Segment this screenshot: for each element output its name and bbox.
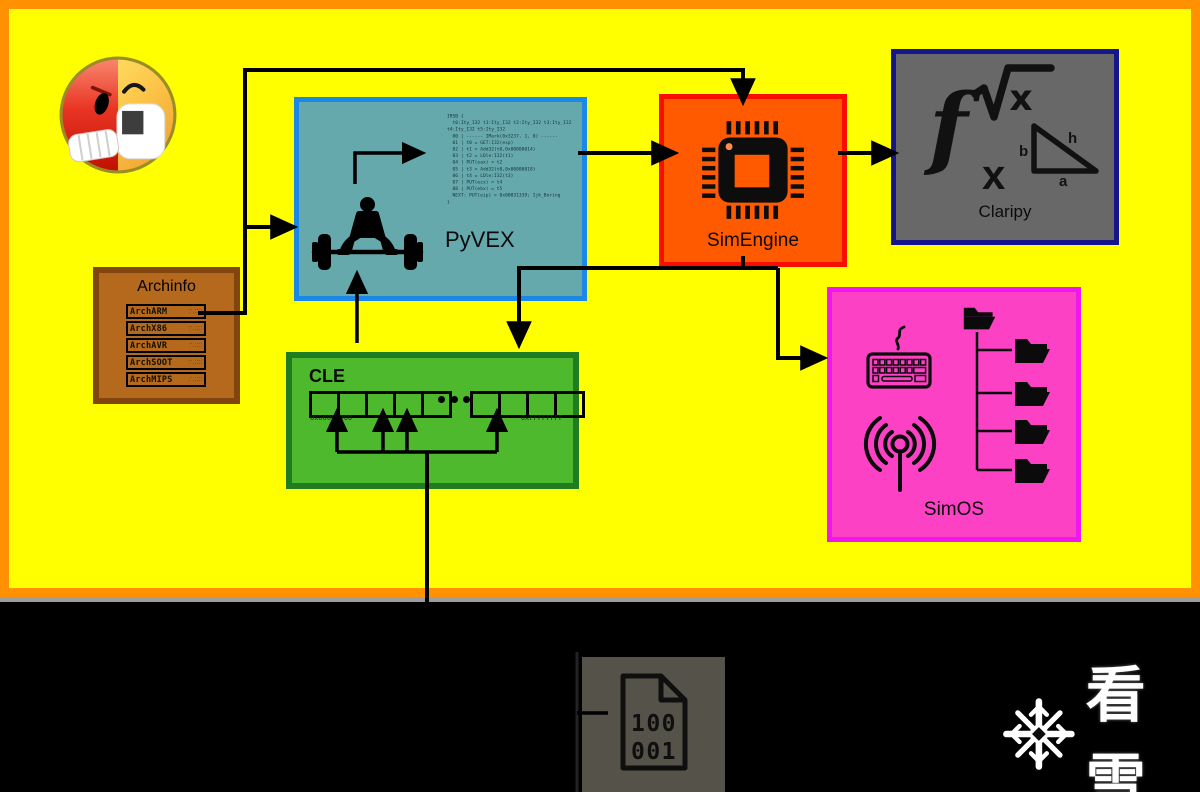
- snowflake-icon: [1002, 692, 1076, 776]
- arch-row: ArchARM ·· ····· ·····: [126, 304, 206, 319]
- weightlifter-icon: [310, 192, 425, 277]
- arch-row-detail: ·· ····· ·····: [188, 360, 202, 365]
- keyboard-icon: [864, 324, 934, 394]
- ellipsis-dots: [438, 396, 470, 403]
- arch-row-label: ArchAVR: [130, 341, 167, 351]
- svg-text:a: a: [1059, 173, 1068, 188]
- svg-text:b: b: [1019, 143, 1028, 160]
- folder-tree-icon: [950, 304, 1090, 490]
- svg-text:001: 001: [631, 739, 677, 765]
- cpu-chip-icon: [696, 111, 810, 225]
- simengine-label: SimEngine: [664, 230, 842, 252]
- diagram-slide: Archinfo ArchARM ·· ····· ····· ArchX86 …: [0, 0, 1200, 597]
- arch-row-detail: ·· ····· ·····: [188, 343, 202, 348]
- arch-row-detail: ·· ····· ·····: [188, 326, 202, 331]
- fx-subscript: x: [982, 154, 1005, 196]
- claripy-box: x f x b h a Claripy: [891, 49, 1119, 245]
- pyvex-box: IRSB { t0:Ity_I32 t1:Ity_I32 t2:Ity_I32 …: [294, 97, 587, 301]
- arch-row: ArchX86 ·· ····· ·····: [126, 321, 206, 336]
- cle-label: CLE: [309, 366, 345, 387]
- arch-row-detail: ·· ····· ·····: [188, 309, 202, 314]
- simos-label: SimOS: [832, 499, 1076, 521]
- archinfo-title: Archinfo: [99, 278, 234, 296]
- kanxue-watermark: 看雪: [1002, 690, 1200, 778]
- fx-function-icon: f: [929, 82, 968, 172]
- arch-row-label: ArchMIPS: [130, 375, 173, 385]
- svg-text:h: h: [1068, 130, 1077, 147]
- memory-cell: [365, 391, 396, 418]
- arch-row-detail: ·· ····· ·····: [188, 377, 202, 382]
- arch-row: ArchSOOT ·· ····· ·····: [126, 355, 206, 370]
- pyvex-label: PyVEX: [445, 227, 515, 253]
- angr-architecture-diagram: Archinfo ArchARM ·· ····· ····· ArchX86 …: [0, 0, 1200, 792]
- right-triangle-icon: b h a: [1004, 118, 1104, 188]
- arch-row-label: ArchX86: [130, 324, 167, 334]
- arch-row: ArchMIPS ·· ····· ·····: [126, 372, 206, 387]
- vex-ir-code: IRSB { t0:Ity_I32 t1:Ity_I32 t2:Ity_I32 …: [447, 113, 587, 205]
- archinfo-box: Archinfo ArchARM ·· ····· ····· ArchX86 …: [93, 267, 240, 404]
- address-low-label: 0x00000000: [310, 414, 352, 422]
- arch-row-label: ArchSOOT: [130, 358, 173, 368]
- memory-cell: [393, 391, 424, 418]
- arch-row-label: ArchARM: [130, 307, 167, 317]
- cle-box: CLE 0x00000000 0xFFFFFFFF: [286, 352, 579, 489]
- svg-text:100: 100: [631, 711, 677, 737]
- sqrt-x-icon: x: [971, 62, 1055, 124]
- arch-row: ArchAVR ·· ····· ·····: [126, 338, 206, 353]
- archinfo-rows: ArchARM ·· ····· ····· ArchX86 ·· ····· …: [126, 304, 206, 389]
- binary-file-icon: 100 001: [615, 671, 693, 773]
- angr-angry-face-icon: [57, 54, 179, 176]
- simos-box: SimOS: [827, 287, 1081, 542]
- claripy-label: Claripy: [896, 202, 1114, 222]
- address-high-label: 0xFFFFFFFF: [521, 414, 563, 422]
- simengine-box: SimEngine: [659, 94, 847, 267]
- svg-text:x: x: [1009, 78, 1032, 119]
- kanxue-text: 看雪: [1086, 647, 1200, 792]
- memory-cell: [470, 391, 501, 418]
- antenna-signal-icon: [856, 408, 944, 496]
- binary-file-panel: 100 001: [582, 657, 725, 792]
